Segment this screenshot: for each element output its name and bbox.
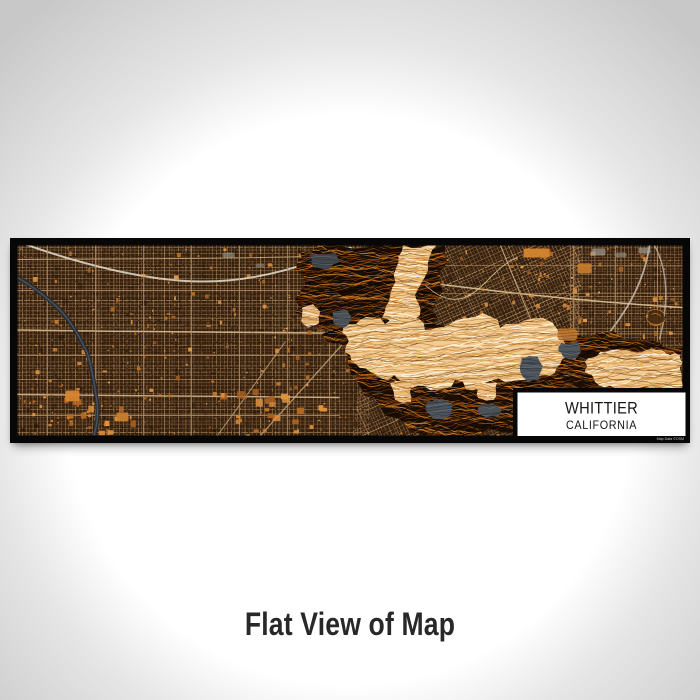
svg-text:WHITTIER: WHITTIER	[565, 400, 638, 418]
svg-text:Map Data ©OSM: Map Data ©OSM	[657, 437, 684, 441]
svg-text:CALIFORNIA: CALIFORNIA	[566, 419, 637, 432]
